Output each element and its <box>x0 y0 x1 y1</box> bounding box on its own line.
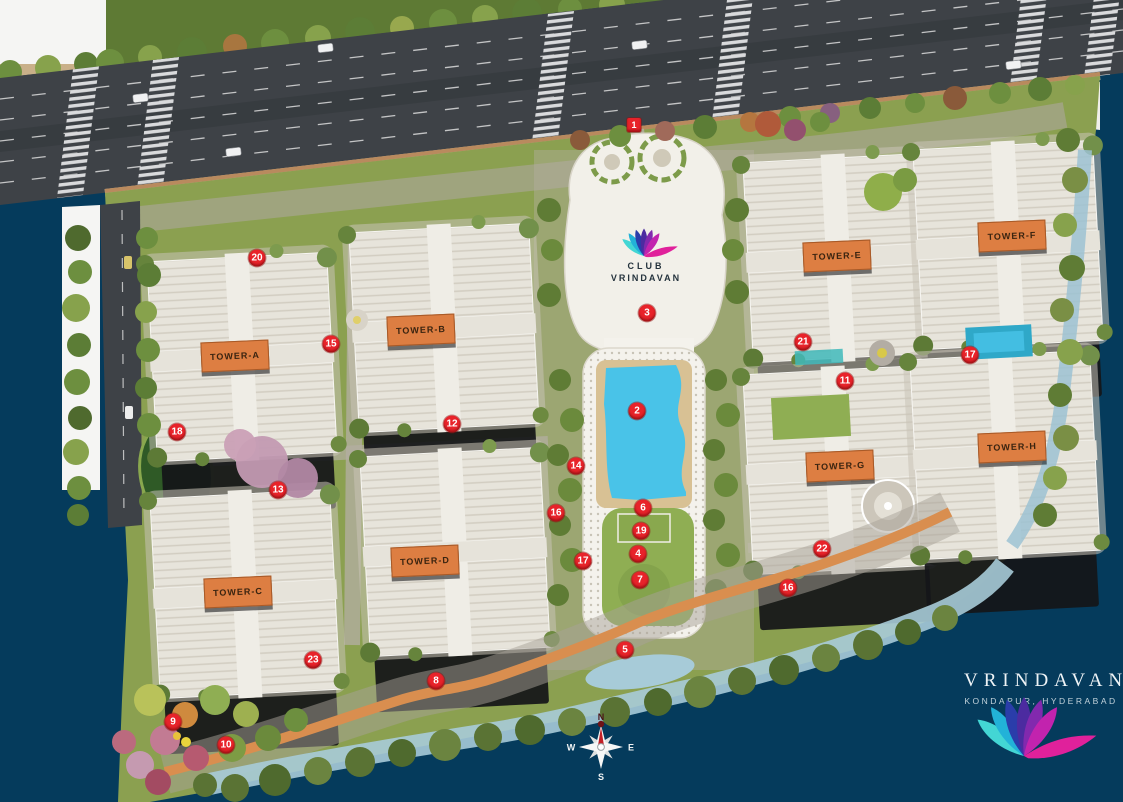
plan-marker-20: 20 <box>249 250 266 267</box>
plan-marker-1: 1 <box>627 118 641 132</box>
plan-marker-14: 14 <box>568 458 585 475</box>
plan-marker-9: 9 <box>165 714 182 731</box>
plan-marker-17: 17 <box>575 553 592 570</box>
tower-label-h: TOWER-H <box>977 431 1046 464</box>
tower-label-b: TOWER-B <box>386 314 455 347</box>
plan-marker-16: 16 <box>548 505 565 522</box>
plan-marker-11: 11 <box>837 373 854 390</box>
plan-marker-8: 8 <box>428 673 445 690</box>
plan-marker-4: 4 <box>630 546 647 563</box>
plan-marker-18: 18 <box>169 424 186 441</box>
tower-label-f: TOWER-F <box>977 220 1046 253</box>
plan-marker-12: 12 <box>444 416 461 433</box>
plan-marker-17-2: 17 <box>962 347 979 364</box>
plan-marker-21: 21 <box>795 334 812 351</box>
labels-layer: TOWER-ATOWER-BTOWER-CTOWER-DTOWER-ETOWER… <box>0 0 1123 802</box>
tower-label-d: TOWER-D <box>390 545 459 578</box>
tower-label-g: TOWER-G <box>805 450 874 483</box>
plan-marker-23: 23 <box>305 652 322 669</box>
tower-label-e: TOWER-E <box>802 240 871 273</box>
plan-marker-15: 15 <box>323 336 340 353</box>
plan-marker-13: 13 <box>270 482 287 499</box>
brand-logo-icon <box>958 668 1098 760</box>
club-label-line2: VRINDAVAN <box>611 273 681 283</box>
club-label-line1: CLUB <box>611 261 681 271</box>
plan-marker-6: 6 <box>635 500 652 517</box>
plan-marker-10: 10 <box>218 737 235 754</box>
plan-marker-22: 22 <box>814 541 831 558</box>
plan-marker-16-2: 16 <box>780 580 797 597</box>
plan-marker-7: 7 <box>632 572 649 589</box>
plan-marker-2: 2 <box>629 403 646 420</box>
club-label: CLUB VRINDAVAN <box>611 261 681 283</box>
plan-marker-19: 19 <box>633 523 650 540</box>
brand-lockup: VRINDAVAN KONDAPUR, HYDERABAD <box>958 668 1122 706</box>
plan-marker-3: 3 <box>639 305 656 322</box>
master-plan: N W E S TOWER-ATOWER-BTOWER-CTOWER-DTOWE… <box>0 0 1123 802</box>
tower-label-a: TOWER-A <box>200 340 269 373</box>
tower-label-c: TOWER-C <box>203 576 272 609</box>
plan-marker-5: 5 <box>617 642 634 659</box>
